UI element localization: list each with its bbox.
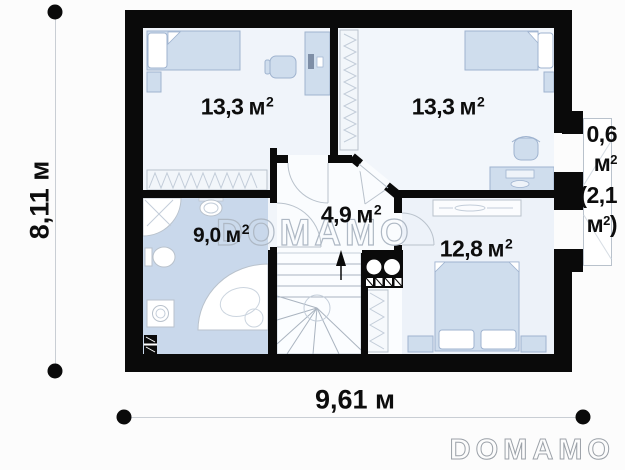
desk-icon xyxy=(305,32,330,95)
single-bed-icon xyxy=(465,31,553,70)
area-unit: м xyxy=(459,94,476,120)
double-bed-icon xyxy=(435,262,519,351)
nightstand-icon xyxy=(408,336,433,352)
wardrobe-icon xyxy=(147,170,267,190)
area-sup: 2 xyxy=(505,236,512,252)
room-area-label-top-right: 13,3м2 xyxy=(412,94,485,121)
nightstand-icon xyxy=(521,336,546,352)
staircase-icon xyxy=(277,253,361,354)
balcony-area-line: 0,6 xyxy=(579,120,617,149)
balcony-wall-stub xyxy=(562,249,583,272)
area-sup: 2 xyxy=(242,221,249,237)
area-unit: м xyxy=(226,224,241,247)
balcony-area-line: м2) xyxy=(579,210,617,242)
width-dimension-label: 9,61 м xyxy=(315,385,395,416)
washing-machine-icon xyxy=(147,300,174,327)
dresser-icon xyxy=(433,200,521,216)
wardrobe-icon xyxy=(367,290,388,352)
room-area-label-bedroom: 12,8м2 xyxy=(440,236,513,263)
floor-plan xyxy=(125,10,572,372)
area-value: 13,3 xyxy=(412,94,455,120)
desk-icon xyxy=(490,167,554,191)
room-area-label-hall: 4,9м2 xyxy=(321,202,381,229)
area-unit: м xyxy=(356,202,373,228)
toilet-icon xyxy=(145,247,175,267)
radiator-icon xyxy=(144,335,157,354)
brand-logo: DOMAMO xyxy=(450,434,615,467)
balcony-area-line: (2,1 xyxy=(579,181,617,210)
dimension-dot xyxy=(117,410,132,425)
area-sup: 2 xyxy=(477,94,484,110)
horizontal-dimension-line xyxy=(124,417,583,418)
height-dimension-label: 8,11 м xyxy=(25,161,56,240)
dimension-dot xyxy=(576,410,591,425)
dimension-dot xyxy=(48,5,63,20)
area-value: 9,0 xyxy=(193,224,221,247)
chimney-flue-icon xyxy=(362,250,403,288)
area-value: 13,3 xyxy=(201,94,244,120)
area-unit: м xyxy=(487,236,504,262)
balcony-area-line: м2 xyxy=(579,149,617,181)
dimension-dot xyxy=(48,364,63,379)
nightstand-icon xyxy=(147,72,161,92)
room-area-label-top-left: 13,3м2 xyxy=(201,94,274,121)
room-area-label-bathroom: 9,0м2 xyxy=(193,224,249,248)
area-sup: 2 xyxy=(374,202,381,218)
area-unit: м xyxy=(248,94,265,120)
balcony-area-labels: 0,6 м2 (2,1 м2) xyxy=(579,120,617,242)
wardrobe-icon xyxy=(340,30,358,150)
office-chair-icon xyxy=(512,137,540,161)
single-bed-icon xyxy=(147,31,240,70)
area-value: 12,8 xyxy=(440,236,483,262)
area-sup: 2 xyxy=(266,94,273,110)
nightstand-icon xyxy=(544,72,554,92)
floor-plan-page: 8,11 м 9,61 м xyxy=(0,0,625,470)
area-value: 4,9 xyxy=(321,202,351,228)
floor-plan-drawing xyxy=(143,28,554,354)
